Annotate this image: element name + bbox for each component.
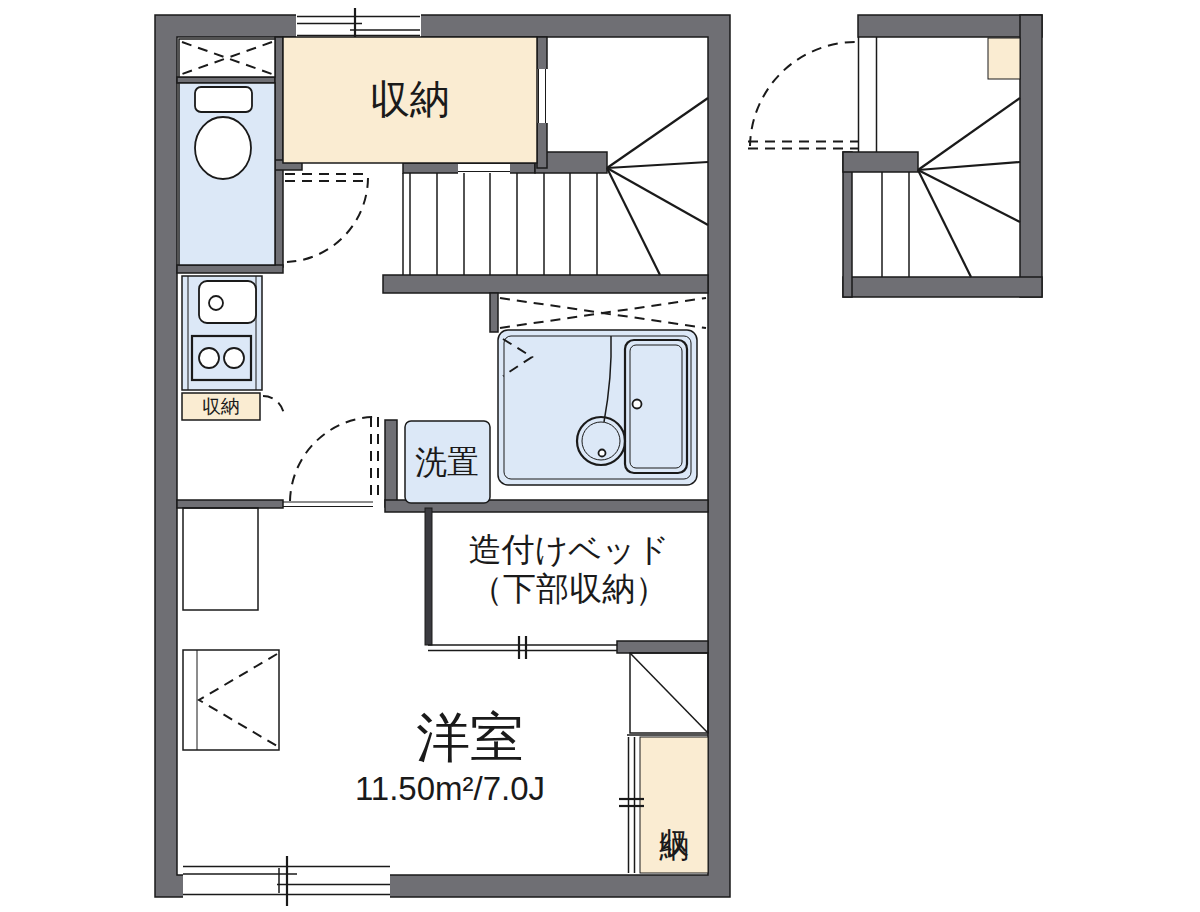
- kitchen-unit: [182, 276, 262, 390]
- wall-below-stairs: [383, 275, 708, 293]
- kitchen-storage-door-arc: [263, 396, 284, 417]
- wall-below-toilet: [177, 265, 283, 273]
- wall-block-right: [1020, 15, 1042, 297]
- wall-bed-bottom-stub: [617, 641, 708, 653]
- door-entry-stair-block: [748, 42, 858, 149]
- wall-bath-left-stub: [490, 293, 498, 332]
- kitchen-faucet-icon: [209, 296, 223, 310]
- floorplan-canvas: 収納 洗置 造付けベッド （下部収納） 洋室 11.50m²/7.0J 収納 収…: [0, 0, 1200, 912]
- wall-stair-left-upper: [537, 37, 547, 70]
- closet-label: 収納: [640, 748, 708, 870]
- wall-toilet-right: [275, 37, 283, 267]
- stair-landing-box: [988, 38, 1020, 79]
- wall-block-top: [858, 15, 1042, 37]
- bathroom: [498, 298, 706, 485]
- storage-top-label: 収納: [283, 76, 537, 122]
- toilet-icon: [195, 87, 252, 179]
- counter-desk: [183, 508, 258, 610]
- shelf-box: [179, 39, 275, 77]
- stairs-main-winders: [607, 98, 708, 275]
- door-toilet-hall: [285, 174, 368, 262]
- wall-block-stub: [843, 152, 918, 172]
- main-room-area-label: 11.50m²/7.0J: [300, 770, 600, 808]
- bath-ceiling-x: [500, 298, 706, 328]
- wall-hall-room: [177, 500, 283, 508]
- stairs-block-winders: [918, 98, 1020, 277]
- bed-label-line1: 造付けベッド: [430, 530, 708, 569]
- wall-block-left: [843, 152, 852, 297]
- bath-unit: [498, 330, 697, 485]
- kitchen-storage-label: 収納: [182, 396, 260, 418]
- kitchen-sink-icon: [199, 281, 256, 323]
- bed-label: 造付けベッド （下部収納）: [430, 530, 708, 608]
- wall-stair-left-lower: [537, 122, 547, 168]
- wall-storage-bottom-b: [508, 163, 535, 173]
- bed-label-line2: （下部収納）: [430, 569, 708, 608]
- washer-label: 洗置: [401, 444, 493, 481]
- wall-washer-left: [385, 420, 397, 507]
- closet-left: [183, 650, 279, 750]
- room-door-threshold: [283, 502, 373, 507]
- wall-storage-bottom-a: [403, 163, 460, 173]
- bed-area: [428, 636, 617, 659]
- wall-toilet-shelf-divider: [177, 77, 275, 83]
- window-bottom: [183, 856, 390, 906]
- door-main-room: [290, 417, 378, 501]
- main-room-label: 洋室: [330, 706, 610, 768]
- wall-block-bottom: [843, 277, 1042, 297]
- floorplan-drawing: [0, 0, 1200, 912]
